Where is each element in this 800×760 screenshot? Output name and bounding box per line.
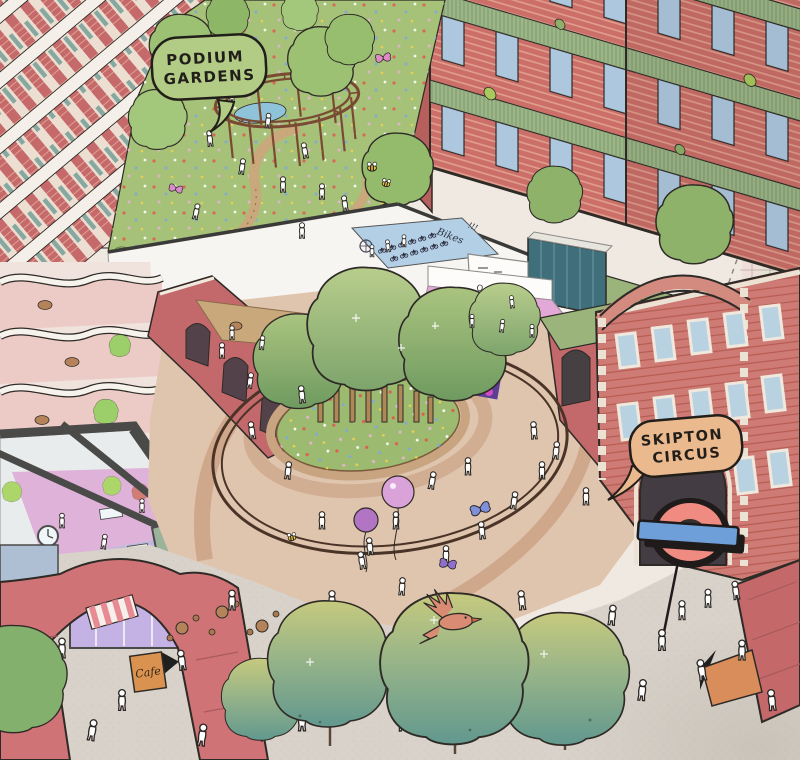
balloon-purple (354, 508, 378, 532)
svg-text:PODIUM GARDENS: PODIUM GARDENS (162, 47, 256, 89)
architectural-illustration: Bikes !!! OFFICES (0, 0, 800, 760)
balloon-pink (382, 476, 414, 508)
illustration-canvas: Bikes !!! OFFICES (0, 0, 800, 760)
